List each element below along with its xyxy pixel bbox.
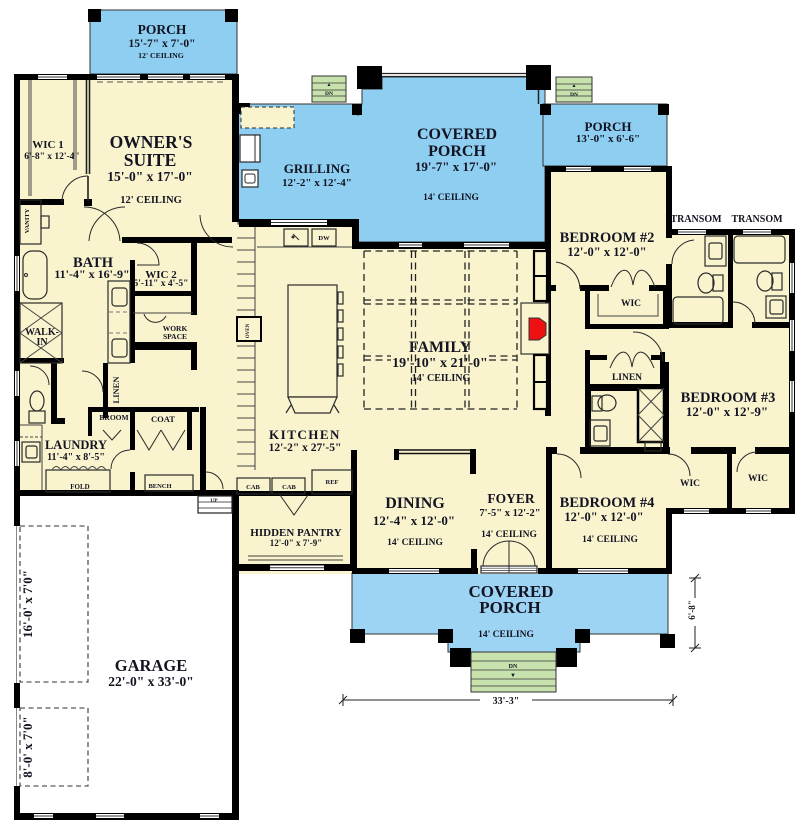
svg-text:LAUNDRY: LAUNDRY	[45, 438, 107, 452]
svg-text:BENCH: BENCH	[148, 483, 171, 490]
svg-text:13'-0" x 6'-6": 13'-0" x 6'-6"	[576, 133, 640, 145]
svg-text:11'-4" x 16'-9": 11'-4" x 16'-9"	[54, 267, 129, 281]
svg-text:12'-2" x 12'-4": 12'-2" x 12'-4"	[282, 177, 352, 189]
svg-text:▼: ▼	[510, 673, 516, 679]
svg-text:COAT: COAT	[151, 414, 175, 424]
svg-text:PORCH: PORCH	[585, 119, 632, 134]
svg-text:COVERED: COVERED	[417, 126, 497, 143]
svg-text:PORCH: PORCH	[479, 598, 540, 617]
svg-text:TRANSOM: TRANSOM	[670, 214, 722, 225]
svg-text:WIC: WIC	[680, 479, 700, 489]
svg-text:14' CEILING: 14' CEILING	[478, 630, 534, 640]
svg-text:BEDROOM #2: BEDROOM #2	[560, 230, 655, 246]
svg-text:14' CEILING: 14' CEILING	[412, 373, 471, 384]
svg-text:14' CEILING: 14' CEILING	[481, 530, 537, 540]
svg-text:19'-10" x 21'-0": 19'-10" x 21'-0"	[392, 356, 488, 371]
svg-text:SUITE: SUITE	[124, 150, 177, 170]
svg-text:15'-7" x 7'-0": 15'-7" x 7'-0"	[128, 38, 195, 50]
svg-text:6'-8" x 12'-4": 6'-8" x 12'-4"	[24, 152, 79, 162]
svg-text:CAB: CAB	[282, 484, 296, 491]
svg-text:DN: DN	[325, 91, 333, 97]
svg-text:UP: UP	[210, 498, 218, 504]
svg-text:▲: ▲	[327, 83, 332, 88]
svg-text:12'-0" x 12'-9": 12'-0" x 12'-9"	[686, 404, 768, 419]
svg-text:OWNER'S: OWNER'S	[110, 132, 193, 152]
svg-text:16'-0' x 7'0": 16'-0' x 7'0"	[20, 570, 35, 638]
svg-text:7'-5" x 12'-2": 7'-5" x 12'-2"	[479, 508, 540, 519]
svg-text:SPACE: SPACE	[163, 332, 187, 341]
svg-text:OVEN: OVEN	[246, 323, 251, 338]
svg-text:DINING: DINING	[385, 495, 445, 512]
svg-text:12'-4" x 12'-0": 12'-4" x 12'-0"	[373, 513, 455, 528]
svg-text:REF: REF	[326, 479, 339, 486]
svg-text:15'-0" x 17'-0": 15'-0" x 17'-0"	[107, 169, 192, 184]
svg-text:14' CEILING: 14' CEILING	[582, 535, 638, 545]
svg-text:LINEN: LINEN	[612, 373, 642, 383]
svg-text:11'-4" x 8'-5": 11'-4" x 8'-5"	[47, 452, 105, 463]
svg-text:KITCHEN: KITCHEN	[269, 427, 341, 442]
svg-text:FOLD: FOLD	[70, 483, 89, 491]
svg-text:FOYER: FOYER	[487, 491, 535, 506]
svg-text:BEDROOM #4: BEDROOM #4	[560, 495, 655, 511]
svg-text:DN: DN	[509, 664, 518, 670]
svg-text:12'-2" x 27'-5": 12'-2" x 27'-5"	[269, 442, 342, 454]
svg-text:WIC 1: WIC 1	[32, 139, 63, 151]
svg-text:PORCH: PORCH	[138, 22, 187, 37]
svg-text:GARAGE: GARAGE	[115, 656, 187, 675]
svg-text:33'-3": 33'-3"	[493, 696, 520, 707]
svg-text:19'-7" x 17'-0": 19'-7" x 17'-0"	[415, 159, 497, 174]
svg-text:WIC: WIC	[748, 474, 768, 484]
svg-text:14' CEILING: 14' CEILING	[387, 538, 443, 548]
svg-text:12'-0" x 12'-0": 12'-0" x 12'-0"	[564, 510, 643, 524]
svg-text:6'-8": 6'-8"	[687, 600, 697, 620]
svg-text:CAB: CAB	[246, 484, 260, 491]
svg-text:TRANSOM: TRANSOM	[731, 214, 783, 225]
svg-text:5'-11" x 4'-5": 5'-11" x 4'-5"	[134, 279, 189, 289]
svg-text:DN: DN	[570, 92, 578, 98]
svg-text:12' CEILING: 12' CEILING	[138, 51, 184, 60]
svg-text:22'-0" x 33'-0": 22'-0" x 33'-0"	[108, 674, 193, 689]
svg-text:12'-0" x 7'-9": 12'-0" x 7'-9"	[270, 538, 323, 548]
svg-text:FAMILY: FAMILY	[409, 339, 472, 356]
svg-text:GRILLING: GRILLING	[284, 161, 350, 176]
svg-text:▲: ▲	[572, 84, 577, 89]
svg-text:14' CEILING: 14' CEILING	[423, 193, 479, 203]
svg-text:12' CEILING: 12' CEILING	[120, 195, 182, 206]
svg-text:DW: DW	[318, 235, 330, 242]
svg-text:LINEN: LINEN	[111, 376, 121, 404]
svg-text:BROOM: BROOM	[99, 413, 128, 422]
svg-text:PORCH: PORCH	[428, 143, 486, 160]
svg-text:12'-0" x 12'-0": 12'-0" x 12'-0"	[567, 245, 646, 259]
svg-text:VANITY: VANITY	[24, 208, 31, 233]
svg-text:8'-0' x 7'0": 8'-0' x 7'0"	[20, 716, 35, 777]
svg-text:WIC: WIC	[621, 299, 641, 309]
